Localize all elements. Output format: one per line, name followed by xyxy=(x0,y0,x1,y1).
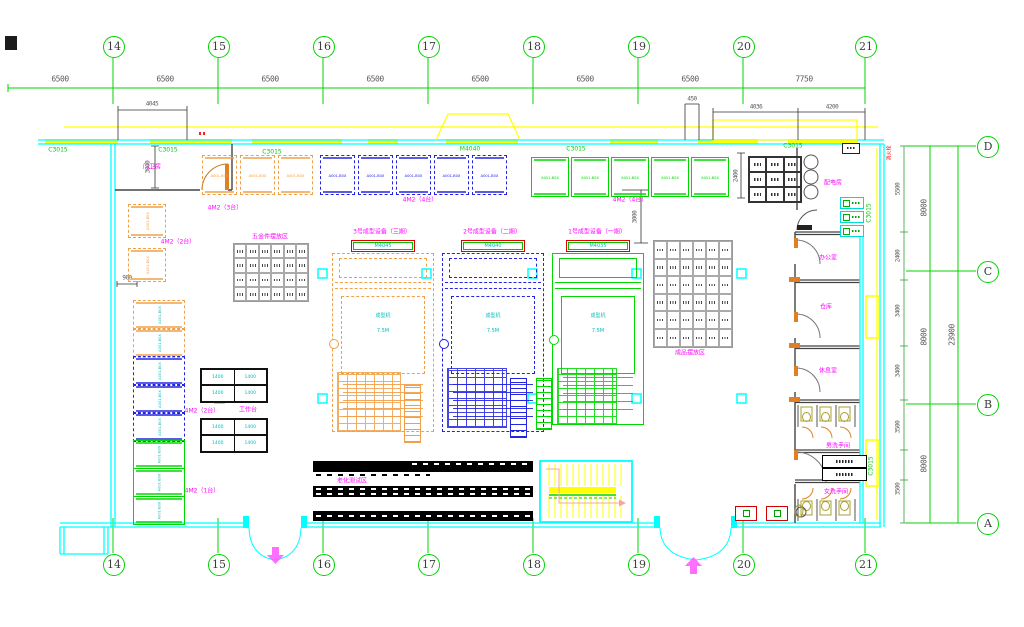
equipment-cell xyxy=(784,157,801,172)
grid-bubble-top-15: 15 xyxy=(208,36,230,58)
rack-cell xyxy=(246,258,258,272)
rack-cell xyxy=(246,273,258,287)
machine-model-text: A001-B0X xyxy=(534,160,566,194)
sub-dim-7: 2400 xyxy=(733,170,740,182)
machine-port xyxy=(549,335,559,345)
rack-cell xyxy=(654,241,667,259)
machine-platform xyxy=(337,372,401,432)
grid-bubble-bottom-17: 17 xyxy=(418,554,440,576)
machine-header-text: M4040 xyxy=(463,242,523,250)
press-row-blue-unit-1: A001-B0X xyxy=(358,155,393,195)
rack-cell xyxy=(234,287,246,301)
rack-left xyxy=(233,243,309,302)
work-table-cell: 1400 xyxy=(202,386,234,401)
machine-label-2: 7.5M xyxy=(443,328,543,334)
service-fixture-1 xyxy=(766,506,788,521)
sink-counter-1 xyxy=(822,468,867,481)
rack-cell xyxy=(680,311,693,329)
rack-cell xyxy=(719,311,732,329)
fan-unit-box xyxy=(842,143,860,154)
sub-dim-2: 4036 xyxy=(750,104,762,111)
area-label-12: 办公室 xyxy=(819,253,837,262)
fixture-icon xyxy=(743,510,750,517)
equipment-cell xyxy=(784,187,801,202)
rack-cell xyxy=(271,244,283,258)
stall-door-arc xyxy=(840,427,851,438)
electrical-panel-0 xyxy=(840,197,864,209)
press-row-green-unit-0: A001-B0X xyxy=(531,157,569,197)
column-9 xyxy=(737,394,746,403)
area-label-6: 4M2（1台） xyxy=(185,486,220,495)
conveyor-bar-3 xyxy=(313,511,533,521)
conveyor-dashes-ext xyxy=(316,474,430,476)
rack-cell xyxy=(284,287,296,301)
machine-line xyxy=(555,282,641,283)
rack-cell xyxy=(667,259,680,277)
stall-door-arc xyxy=(821,427,832,438)
rack-cell xyxy=(296,258,308,272)
work-table-cell: 1400 xyxy=(234,386,267,401)
rack-cell xyxy=(667,311,680,329)
window-label-4: C3015 xyxy=(566,146,585,153)
area-label-0: 门卫房 xyxy=(143,162,161,171)
rack-cell xyxy=(654,294,667,312)
machine-model-text: A001-B0X xyxy=(147,488,171,533)
rack-cell xyxy=(680,329,693,347)
machine-header-text: M4035 xyxy=(568,242,628,250)
fixture-icon xyxy=(774,510,781,517)
column-0 xyxy=(318,269,327,278)
sub-dim-0: 4045 xyxy=(146,101,158,108)
rack-cell xyxy=(259,273,271,287)
machine-model-text: A001-B0X xyxy=(399,158,429,192)
press-row-green-unit-1: A001-B0X xyxy=(571,157,609,197)
rack-cell xyxy=(246,244,258,258)
panel-switch-icon xyxy=(843,228,850,235)
rack-cell xyxy=(693,241,706,259)
rack-cell xyxy=(667,241,680,259)
room-dim-4: 3500 xyxy=(895,421,902,433)
top-dim-0: 6500 xyxy=(51,75,68,84)
area-label-10: 老化测试区 xyxy=(337,476,367,485)
window-label-3: M4040 xyxy=(460,146,480,153)
room-dim-2: 3400 xyxy=(895,305,902,317)
machine-model-text: A001-B0X xyxy=(133,205,162,237)
rack-cell xyxy=(284,244,296,258)
window-label-7: C3015 xyxy=(868,456,875,475)
left-pair-unit-0: A001-B0X xyxy=(128,204,166,238)
rack-cell xyxy=(296,287,308,301)
panel-switch-icon xyxy=(843,200,850,207)
area-label-1: 4M2（3台） xyxy=(208,203,243,212)
grid-bubble-bottom-21: 21 xyxy=(855,554,877,576)
machine-line xyxy=(445,282,541,283)
machine-port xyxy=(329,339,339,349)
machine-label-2: 7.5M xyxy=(333,328,433,334)
service-fixture-0 xyxy=(735,506,757,521)
equipment-cell xyxy=(766,172,783,187)
machine-port xyxy=(439,339,449,349)
machine-model-text: A001-B0X xyxy=(361,158,391,192)
machine-model-text: A001-B0X xyxy=(205,158,235,192)
machine-line xyxy=(445,288,541,289)
work-table-cell: 1400 xyxy=(234,436,267,451)
electrical-panel-2 xyxy=(840,225,864,237)
machine-platform xyxy=(447,368,507,428)
machine-title-1: 3号成型设备（三期） xyxy=(353,227,411,236)
grid-bubble-top-21: 21 xyxy=(855,36,877,58)
press-row-orange-unit-2: A001-B0X xyxy=(278,155,313,195)
machine-head xyxy=(449,258,537,278)
rack-cell xyxy=(259,287,271,301)
press-row-green-unit-2: A001-B0X xyxy=(611,157,649,197)
press-row-blue-unit-0: A001-B0X xyxy=(320,155,355,195)
sub-dim-3: 4200 xyxy=(826,104,838,111)
grid-bubble-top-14: 14 xyxy=(103,36,125,58)
rack-cell xyxy=(680,259,693,277)
rack-cell xyxy=(259,258,271,272)
machine-body xyxy=(561,296,635,374)
electrical-panel-1 xyxy=(840,211,864,223)
room-dim-3: 3400 xyxy=(895,365,902,377)
machine-model-text: A001-B0X xyxy=(694,160,726,194)
stall-door-arc xyxy=(802,488,813,499)
rack-cell xyxy=(706,276,719,294)
room-dim-5: 3500 xyxy=(895,483,902,495)
toilet-bowl xyxy=(803,502,811,511)
area-label-5: 4M2（2台） xyxy=(185,406,220,415)
machine-label-1: 成型机 xyxy=(553,312,643,319)
top-dim-3: 6500 xyxy=(366,75,383,84)
machine-model-text: A001-B0X xyxy=(281,158,311,192)
machine-model-text: A001-B0X xyxy=(574,160,606,194)
conveyor-dashes xyxy=(316,488,530,490)
sub-dim-6: 3000 xyxy=(632,211,639,223)
rack-cell xyxy=(234,244,246,258)
area-label-14: 休息室 xyxy=(819,366,837,375)
rack-cell xyxy=(284,258,296,272)
grid-bubble-row-B: B xyxy=(977,394,999,416)
toilet-bowl xyxy=(822,502,830,511)
equipment-grid-3x3 xyxy=(748,156,802,203)
grid-bubble-bottom-20: 20 xyxy=(733,554,755,576)
rack-cell xyxy=(246,287,258,301)
machine-model-text: A001-B0X xyxy=(133,249,162,281)
rack-cell xyxy=(234,258,246,272)
rack-cell xyxy=(693,276,706,294)
machine-header-box: M4045 xyxy=(351,240,415,252)
rack-right xyxy=(653,240,733,348)
machine-model-text: A001-B0X xyxy=(323,158,353,192)
equipment-cell xyxy=(749,187,766,202)
right-dim-8000-2: 8000 xyxy=(920,455,929,472)
window-label-1: C3015 xyxy=(158,147,177,154)
right-dim-8000-0: 8000 xyxy=(920,199,929,216)
press-row-orange-unit-0: A001-B0X xyxy=(202,155,237,195)
machine-label-2: 7.5M xyxy=(553,328,643,334)
right-dim-total: 23900 xyxy=(948,324,957,346)
grid-bubble-bottom-14: 14 xyxy=(103,554,125,576)
machine-model-text: A001-B0X xyxy=(654,160,686,194)
machine-model-text: A001-B0X xyxy=(614,160,646,194)
rack-cell xyxy=(284,273,296,287)
rack-cell xyxy=(719,329,732,347)
rack-cell xyxy=(296,273,308,287)
rack-cell xyxy=(271,258,283,272)
rack-cell xyxy=(719,241,732,259)
toilet-bowl xyxy=(841,502,849,511)
press-row-blue-unit-4: A001-B0X xyxy=(472,155,507,195)
machine-platform xyxy=(557,368,617,425)
conveyor-bar-2 xyxy=(313,486,533,497)
top-dim-7: 7750 xyxy=(795,75,812,84)
rack-cell xyxy=(234,273,246,287)
work-table-cell: 1400 xyxy=(202,370,234,385)
area-label-7: 五金件摆放区 xyxy=(252,232,288,241)
rack-cell xyxy=(654,259,667,277)
rack-cell xyxy=(667,294,680,312)
machine-header-box: M4035 xyxy=(566,240,630,252)
grid-bubble-top-16: 16 xyxy=(313,36,335,58)
rack-cell xyxy=(667,329,680,347)
work-table-cell: 1400 xyxy=(202,436,234,451)
rack-cell xyxy=(680,241,693,259)
area-label-11: 配电房 xyxy=(824,178,842,187)
conveyor-dashes xyxy=(412,463,530,465)
machine-line xyxy=(335,282,431,283)
sub-dim-1: 450 xyxy=(687,96,696,103)
left-stack-unit-2-2: A001-B0X xyxy=(133,496,185,525)
rack-cell xyxy=(706,311,719,329)
toilet-bowl xyxy=(841,413,849,422)
rack-cell xyxy=(693,259,706,277)
machine-body xyxy=(341,296,425,374)
machine-head xyxy=(339,258,427,278)
room-dim-1: 2400 xyxy=(895,250,902,262)
area-label-2: 4M2（4台） xyxy=(403,195,438,204)
equipment-circles xyxy=(795,155,818,517)
conveyor-bar-1 xyxy=(313,461,533,472)
machine-label-1: 成型机 xyxy=(443,312,543,319)
press-row-blue-unit-2: A001-B0X xyxy=(396,155,431,195)
grid-bubble-bottom-18: 18 xyxy=(523,554,545,576)
grid-bubble-top-20: 20 xyxy=(733,36,755,58)
equipment-cell xyxy=(766,157,783,172)
window-label-5: C3015 xyxy=(783,143,802,150)
room-dim-0: 5500 xyxy=(895,183,902,195)
rack-cell xyxy=(667,276,680,294)
machine-label-1: 成型机 xyxy=(333,312,433,319)
window-label-6: C3015 xyxy=(866,203,873,222)
area-label-15: 男洗手间 xyxy=(826,441,850,450)
sink-counter-0 xyxy=(822,455,867,468)
rack-cell xyxy=(693,311,706,329)
top-dim-2: 6500 xyxy=(261,75,278,84)
press-row-blue-unit-3: A001-B0X xyxy=(434,155,469,195)
area-label-16: 女洗手间 xyxy=(824,487,848,496)
machine-title-2: 2号成型设备（二期） xyxy=(463,227,521,236)
equipment-cell xyxy=(766,187,783,202)
press-row-green-unit-3: A001-B0X xyxy=(651,157,689,197)
top-dim-5: 6500 xyxy=(576,75,593,84)
conveyor-dashes xyxy=(316,493,530,495)
rack-cell xyxy=(706,294,719,312)
staircase xyxy=(540,461,632,522)
machine-body xyxy=(451,296,535,374)
work-table-0-1: 14001400 xyxy=(200,384,268,403)
grid-bubble-bottom-19: 19 xyxy=(628,554,650,576)
tank-circle xyxy=(804,170,818,184)
window-label-0: C3015 xyxy=(48,147,67,154)
work-table-cell: 1400 xyxy=(234,420,267,435)
rack-cell xyxy=(706,241,719,259)
rack-cell xyxy=(296,244,308,258)
equipment-cell xyxy=(749,172,766,187)
machine-side-unit xyxy=(404,385,421,443)
toilet-bowl xyxy=(803,413,811,422)
top-dim-6: 6500 xyxy=(681,75,698,84)
rack-cell xyxy=(654,311,667,329)
rack-cell xyxy=(706,259,719,277)
rack-cell xyxy=(719,276,732,294)
panel-switch-icon xyxy=(843,214,850,221)
area-label-13: 仓库 xyxy=(820,302,832,311)
rack-cell xyxy=(654,276,667,294)
fire-hydrant-label: 消火栓 xyxy=(886,145,893,160)
rack-cell xyxy=(271,287,283,301)
rack-cell xyxy=(654,329,667,347)
conveyor-dashes xyxy=(316,515,530,517)
rack-cell xyxy=(693,329,706,347)
rack-cell xyxy=(680,294,693,312)
panel-dashes xyxy=(852,202,861,204)
area-label-8: 成品摆放区 xyxy=(675,348,705,357)
press-row-orange-unit-1: A001-B0X xyxy=(240,155,275,195)
toilet-bowl xyxy=(822,413,830,422)
machine-model-text: A001-B0X xyxy=(475,158,505,192)
floor-plan-canvas: 1414151516161717181819192020212165006500… xyxy=(0,0,1024,627)
grid-bubble-bottom-16: 16 xyxy=(313,554,335,576)
grid-bubble-top-17: 17 xyxy=(418,36,440,58)
exit-arrow-down xyxy=(267,547,284,564)
right-dim-8000-1: 8000 xyxy=(920,328,929,345)
work-table-1-1: 14001400 xyxy=(200,434,268,453)
grid-bubble-row-D: D xyxy=(977,136,999,158)
column-4 xyxy=(737,269,746,278)
top-dim-4: 6500 xyxy=(471,75,488,84)
grid-bubble-bottom-15: 15 xyxy=(208,554,230,576)
rack-cell xyxy=(719,259,732,277)
rack-cell xyxy=(271,273,283,287)
press-row-green-unit-4: A001-B0X xyxy=(691,157,729,197)
grid-bubble-row-C: C xyxy=(977,261,999,283)
rack-cell xyxy=(680,276,693,294)
machine-model-text: A001-B0X xyxy=(243,158,273,192)
equipment-cell xyxy=(784,172,801,187)
rack-cell xyxy=(259,244,271,258)
left-pair-unit-1: A001-B0X xyxy=(128,248,166,282)
rack-cell xyxy=(719,294,732,312)
machine-head xyxy=(559,258,637,278)
machine-header-box: M4040 xyxy=(461,240,525,252)
grid-bubble-top-19: 19 xyxy=(628,36,650,58)
machine-model-text: A001-B0X xyxy=(437,158,467,192)
machine-line xyxy=(335,288,431,289)
tank-circle xyxy=(804,185,818,199)
rack-cell xyxy=(693,294,706,312)
top-dim-1: 6500 xyxy=(156,75,173,84)
tank-circle xyxy=(804,155,818,169)
sheet-corner-mark xyxy=(5,36,17,50)
equipment-cell xyxy=(749,157,766,172)
machine-title-3: 1号成型设备（一期） xyxy=(568,227,626,236)
machine-line xyxy=(555,288,641,289)
area-label-9: 工作台 xyxy=(239,405,257,414)
machine-side-unit xyxy=(510,378,527,438)
column-6 xyxy=(318,394,327,403)
grid-bubble-row-A: A xyxy=(977,513,999,535)
work-table-cell: 1400 xyxy=(202,420,234,435)
work-table-cell: 1400 xyxy=(234,370,267,385)
grid-bubble-top-18: 18 xyxy=(523,36,545,58)
panel-dashes xyxy=(852,230,861,232)
machine-side-unit xyxy=(536,378,552,430)
panel-dashes xyxy=(852,216,861,218)
stall-door-arc xyxy=(802,427,813,438)
red-tick-mark xyxy=(199,132,207,135)
machine-header-text: M4045 xyxy=(353,242,413,250)
rack-cell xyxy=(706,329,719,347)
